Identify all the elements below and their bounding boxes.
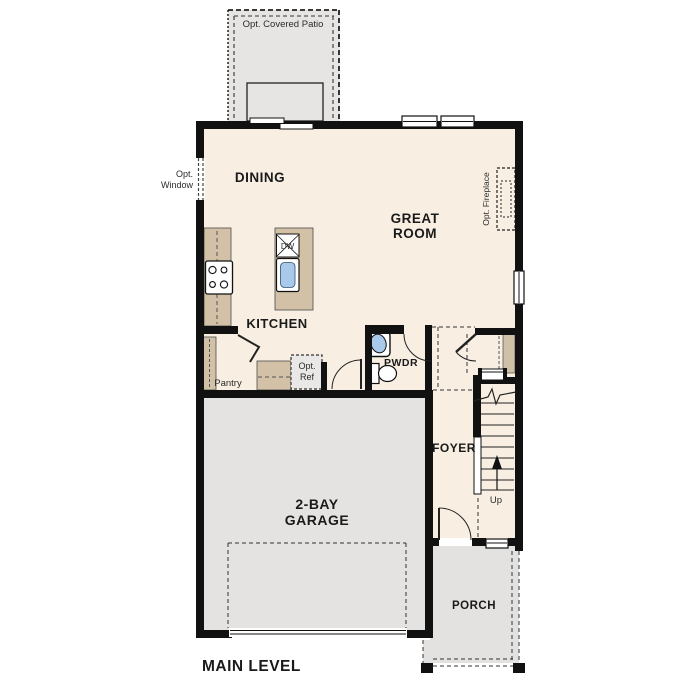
floor-plan-drawing: Opt. Covered Patio DW Opt. Ref Pantry — [0, 0, 687, 687]
wall-foyer-south-b — [472, 538, 486, 546]
great-room-label-line2: ROOM — [393, 226, 437, 241]
opt-ref-label-line1: Opt. — [298, 361, 315, 371]
small-annotations: Opt. Window — [161, 169, 194, 190]
wall-foyer-south-c — [508, 538, 523, 546]
kitchen-label: KITCHEN — [246, 316, 307, 331]
opt-window-label-line2: Window — [161, 180, 194, 190]
wall-closet-north — [475, 328, 517, 335]
burner — [210, 282, 216, 288]
stair-niche-sill — [481, 369, 504, 380]
garage-door-opening — [229, 628, 407, 637]
patio-stoop — [247, 83, 323, 121]
opt-window-label-line1: Opt. — [176, 169, 193, 179]
porch-post-southeast — [513, 663, 525, 673]
wall-west — [196, 200, 204, 638]
wall-foyer-south-a — [425, 538, 439, 546]
foyer-label: FOYER — [432, 441, 476, 455]
kitchen-counter-south — [257, 361, 291, 390]
burner — [209, 266, 216, 273]
wall-pwdr-west — [365, 325, 372, 390]
wall-kitchen-stub — [196, 326, 238, 334]
wall-garage-south-right — [407, 630, 433, 638]
wall-pwdr-north — [365, 325, 404, 334]
wall-east-upper — [515, 121, 523, 271]
porch-post-southwest — [421, 663, 433, 673]
porch-label: PORCH — [452, 600, 496, 612]
garage-label-line1: 2-BAY — [295, 496, 338, 512]
opt-ref-label-line2: Ref — [300, 372, 315, 382]
cooktop — [206, 261, 233, 294]
sliding-door-panel-1 — [250, 118, 284, 124]
great-room-label-line1: GREAT — [391, 211, 440, 226]
wall-garage-north — [196, 390, 433, 398]
wall-east-lower — [515, 304, 523, 551]
burner — [221, 267, 227, 273]
wall-stair-west — [473, 375, 481, 437]
floor-plan-page: Opt. Covered Patio DW Opt. Ref Pantry — [0, 0, 687, 687]
wall-garage-south-left — [196, 630, 232, 638]
dining-label: DINING — [235, 170, 285, 185]
wall-west-upper — [196, 121, 204, 158]
pantry-label: Pantry — [214, 378, 242, 389]
optional-window — [196, 158, 205, 200]
dishwasher-label: DW — [281, 242, 295, 251]
stairs-up-label: Up — [490, 495, 502, 506]
closet-shelf — [503, 333, 515, 373]
porch-floor-notch — [423, 640, 432, 663]
covered-patio: Opt. Covered Patio — [228, 10, 340, 121]
pwdr-label: PWDR — [384, 357, 418, 369]
covered-patio-label: Opt. Covered Patio — [243, 19, 324, 30]
main-level-title: MAIN LEVEL — [202, 658, 301, 675]
garage-label-line2: GARAGE — [285, 512, 349, 528]
wall-garage-east — [425, 390, 433, 638]
burner — [220, 281, 227, 288]
wall-pwdr-east — [425, 325, 432, 390]
sliding-door-panel-2 — [280, 124, 313, 130]
main-floor — [204, 129, 515, 390]
opt-fireplace-label: Opt. Fireplace — [481, 172, 491, 226]
wall-ref-stub — [321, 362, 327, 390]
kitchen-sink-basin — [281, 263, 296, 288]
